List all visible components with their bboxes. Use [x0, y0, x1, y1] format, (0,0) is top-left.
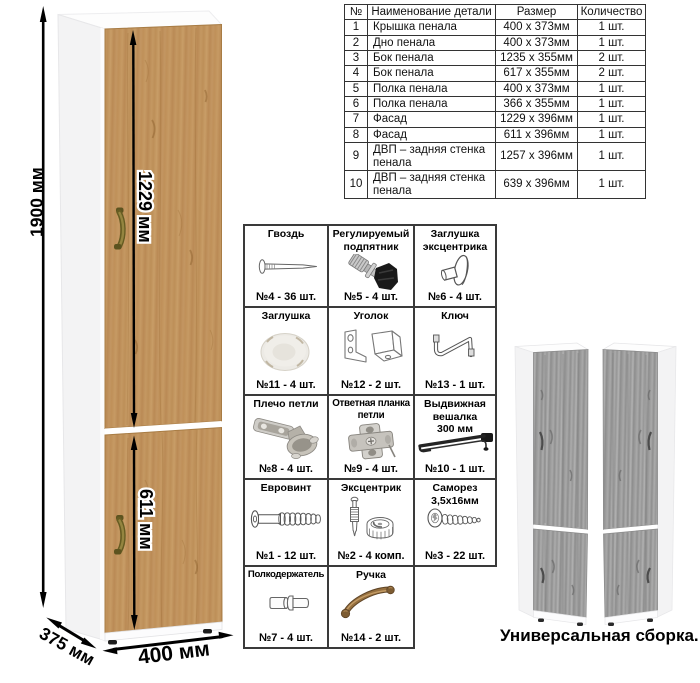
svg-text:400 мм: 400 мм	[137, 637, 211, 669]
svg-text:1229 мм: 1229 мм	[135, 171, 155, 243]
svg-text:1900 мм: 1900 мм	[27, 167, 47, 237]
svg-text:611 мм: 611 мм	[136, 489, 156, 550]
